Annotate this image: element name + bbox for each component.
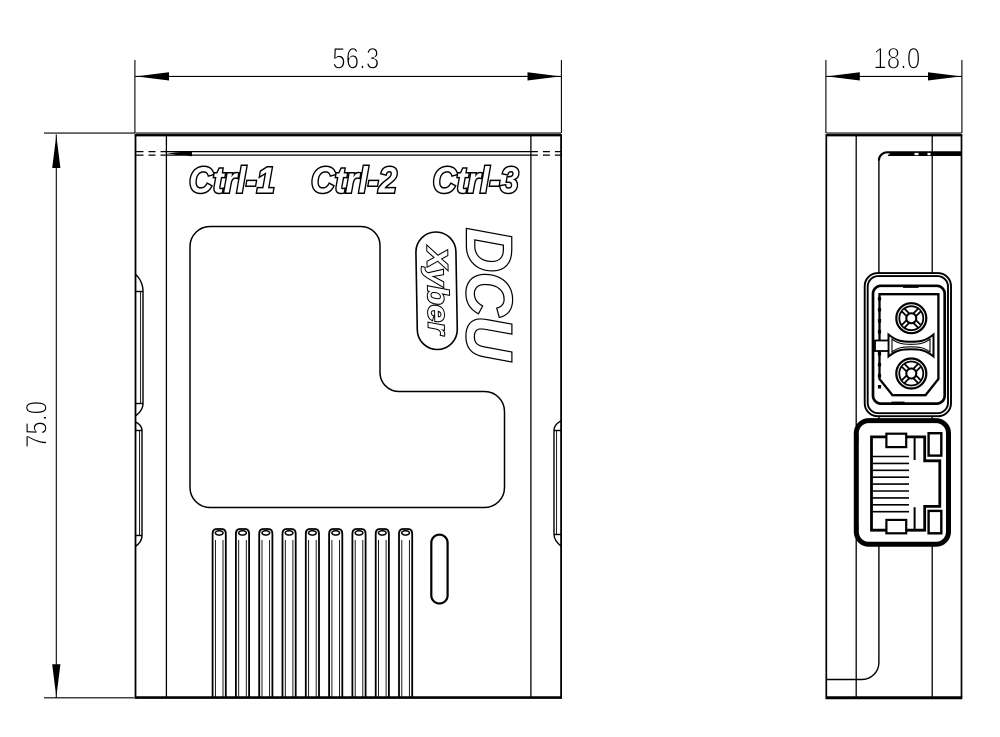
svg-text:Ctrl-1: Ctrl-1 bbox=[189, 160, 275, 201]
svg-text:18.0: 18.0 bbox=[873, 43, 920, 76]
svg-text:Ctrl-3: Ctrl-3 bbox=[433, 160, 519, 201]
svg-text:DCU: DCU bbox=[453, 228, 525, 362]
svg-text:Ctrl-2: Ctrl-2 bbox=[311, 160, 397, 201]
svg-text:75.0: 75.0 bbox=[21, 401, 54, 448]
svg-text:56.3: 56.3 bbox=[332, 43, 379, 76]
svg-text:Xyber: Xyber bbox=[420, 245, 454, 337]
